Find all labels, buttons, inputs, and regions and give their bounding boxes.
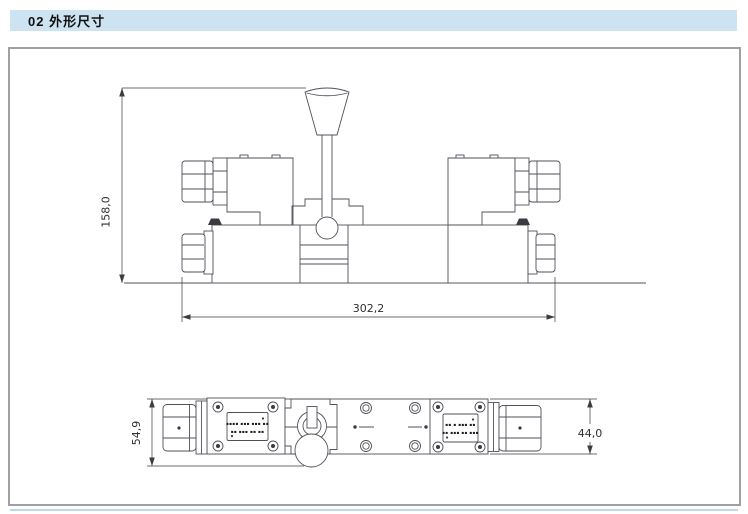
nameplate-right-line2: ▪▪ ▪▪▪ ▪▪ ▪▪▪ [442, 430, 479, 435]
front-view [124, 88, 646, 283]
coil-left-bottom [163, 401, 207, 454]
section-header: 02 外形尺寸 [10, 10, 737, 31]
bottom-accent-line [10, 509, 738, 511]
bottom-view: ▪▪▪▪ ▪▪▪ ▪▪▪ ▪▪ ▪▪ ▪▪▪ ▪▪ ▪▪ ▪▪ ▪ ▪▪▪ ▪▪… [163, 398, 541, 467]
lever-shaft [322, 135, 332, 217]
dim-label-height-front: 158,0 [100, 196, 113, 228]
lever-assembly [292, 88, 363, 239]
technical-drawing-svg: 158,0 302,2 [10, 49, 739, 504]
tower-right [448, 155, 515, 225]
coil-lower-right [528, 231, 555, 274]
lever-knob [305, 88, 349, 135]
dim-label-body-height: 44,0 [578, 427, 603, 440]
lever-ball-bottom [295, 434, 328, 467]
lever-pivot-bottom [285, 399, 337, 467]
drawing-panel: 158,0 302,2 [8, 47, 741, 506]
tower-left [227, 155, 293, 225]
coil-right-bottom [488, 403, 541, 452]
dim-label-overall-height: 54,9 [130, 421, 143, 446]
coil-lower-left [182, 231, 213, 274]
nameplate-right-line1: ▪▪ ▪ ▪▪▪ ▪▪ [445, 422, 475, 427]
dim-label-width-front: 302,2 [353, 302, 385, 315]
solenoid-block-right: ▪▪ ▪ ▪▪▪ ▪▪ ▪▪ ▪▪▪ ▪▪ ▪▪▪ [430, 399, 488, 454]
section-title: 02 外形尺寸 [10, 11, 105, 30]
lever-pivot-ball [316, 217, 338, 239]
solenoid-block-left: ▪▪▪▪ ▪▪▪ ▪▪▪ ▪▪ ▪▪ ▪▪▪ ▪▪ ▪▪ [207, 398, 285, 454]
width-dimension: 302,2 [182, 277, 555, 322]
coil-upper-left [182, 158, 227, 205]
nameplate-left-line1: ▪▪▪▪ ▪▪▪ ▪▪▪ ▪▪ [226, 421, 269, 426]
nameplate-left-line2: ▪▪ ▪▪▪ ▪▪ ▪▪ [231, 429, 265, 434]
valve-body-front [212, 225, 528, 283]
coil-upper-right [515, 158, 560, 205]
